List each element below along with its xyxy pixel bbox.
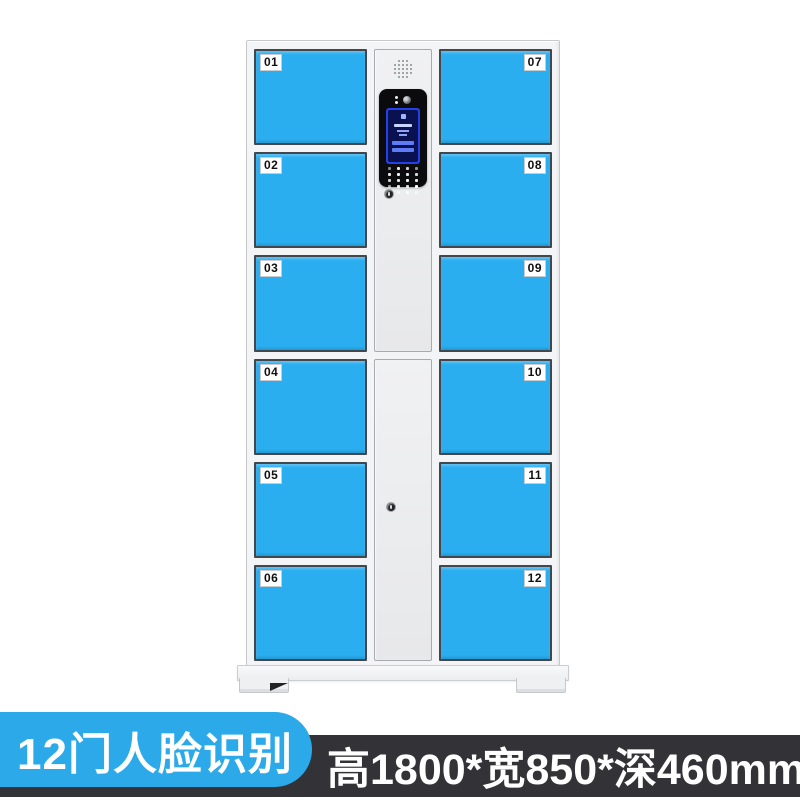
- product-image-page: { "locker": { "left_doors": ["01", "02",…: [0, 0, 800, 800]
- base-shadow-wedge: [270, 683, 288, 691]
- screen-button-bar: [392, 141, 414, 145]
- product-feature-badge: 12门人脸识别: [0, 712, 312, 787]
- center-service-door: [374, 359, 432, 662]
- locker-door-07: 07: [439, 49, 552, 145]
- screen-content: [388, 110, 418, 162]
- face-recognition-terminal: [379, 89, 427, 187]
- door-number-tag: 05: [260, 467, 282, 484]
- locker-door-01: 01: [254, 49, 367, 145]
- locker-door-08: 08: [439, 152, 552, 248]
- screen-button-bar: [392, 148, 414, 152]
- door-number-tag: 08: [524, 157, 546, 174]
- door-number-tag: 04: [260, 364, 282, 381]
- camera-row: [379, 94, 427, 106]
- display-screen: [386, 108, 420, 164]
- door-number-tag: 11: [524, 467, 546, 484]
- door-number-tag: 03: [260, 260, 282, 277]
- feature-badge-text: 12门人脸识别: [0, 718, 293, 782]
- right-door-column: 07 08 09 10 11 12: [439, 49, 552, 661]
- locker-door-03: 03: [254, 255, 367, 351]
- indicator-dots-icon: [395, 96, 398, 104]
- locker-door-06: 06: [254, 565, 367, 661]
- locker-cabinet: 01 02 03 04 05 06: [246, 40, 560, 668]
- control-panel-section: [374, 49, 432, 352]
- locker-door-10: 10: [439, 359, 552, 455]
- screen-text-line: [394, 124, 412, 127]
- locker-door-11: 11: [439, 462, 552, 558]
- speaker-grille-icon: [391, 60, 415, 78]
- screen-logo-icon: [401, 114, 406, 119]
- locker-door-04: 04: [254, 359, 367, 455]
- service-door-keyhole-icon: [386, 502, 396, 512]
- locker-door-09: 09: [439, 255, 552, 351]
- dimensions-text: 高1800*宽850*深460mm: [327, 735, 800, 797]
- door-number-tag: 01: [260, 54, 282, 71]
- center-control-column: [374, 49, 432, 661]
- locker-door-02: 02: [254, 152, 367, 248]
- locker-door-12: 12: [439, 565, 552, 661]
- door-number-tag: 07: [524, 54, 546, 71]
- screen-text-line: [397, 130, 409, 132]
- control-section-keyhole-icon: [384, 189, 394, 199]
- door-number-tag: 06: [260, 570, 282, 587]
- door-number-tag: 09: [524, 260, 546, 277]
- cabinet-inner: 01 02 03 04 05 06: [254, 49, 552, 661]
- cabinet-right-foot: [516, 678, 566, 693]
- door-number-tag: 10: [524, 364, 546, 381]
- locker-door-05: 05: [254, 462, 367, 558]
- camera-lens-icon: [403, 96, 411, 104]
- screen-text-line: [399, 134, 407, 136]
- door-number-tag: 12: [524, 570, 546, 587]
- door-number-tag: 02: [260, 157, 282, 174]
- left-door-column: 01 02 03 04 05 06: [254, 49, 367, 661]
